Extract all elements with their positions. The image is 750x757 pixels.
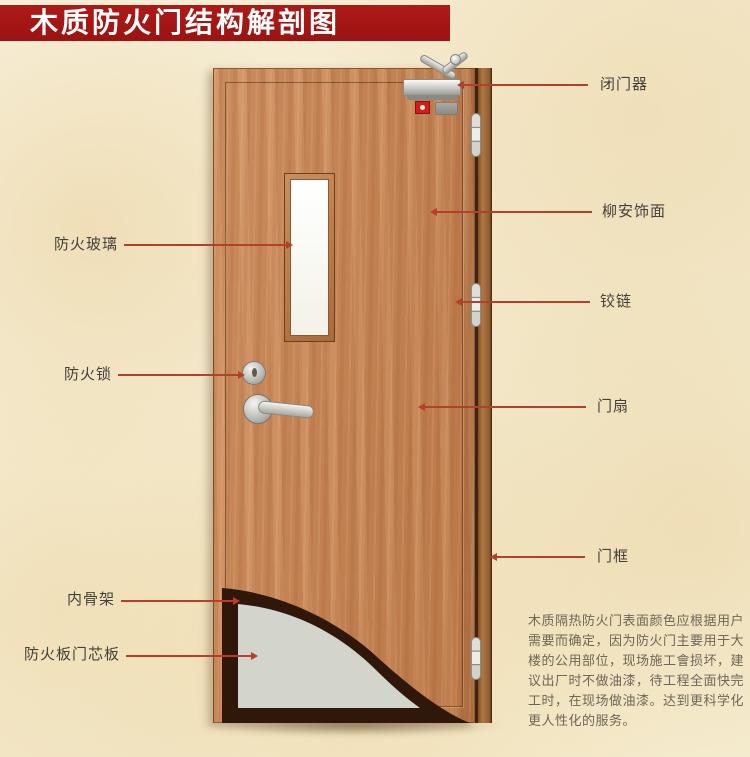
arrowhead-fire-glass — [286, 241, 293, 249]
label-inner-skeleton: 内骨架 — [30, 592, 115, 608]
arrowhead-fire-lock — [238, 371, 245, 379]
label-fire-glass: 防火玻璃 — [30, 237, 118, 253]
alarm-indicator — [415, 101, 430, 114]
door-frame — [478, 68, 492, 723]
arrow-line-core-panel — [126, 655, 251, 657]
arrow-line-inner-skeleton — [121, 600, 233, 602]
arrow-line-door-closer — [464, 84, 588, 86]
lock-cylinder — [242, 361, 266, 385]
arrow-line-hinge — [462, 301, 590, 303]
door-leaf — [213, 68, 475, 723]
closer-pivot — [450, 54, 461, 65]
cutaway-section — [214, 574, 476, 724]
hinge-middle — [471, 283, 481, 327]
page-title: 木质防火门结构解剖图 — [30, 7, 340, 38]
fire-glass-window — [284, 173, 335, 342]
arrowhead-inner-skeleton — [233, 597, 240, 605]
hinge-top — [471, 113, 481, 157]
junction-box — [435, 102, 458, 115]
label-door-frame: 门框 — [597, 549, 629, 565]
door-assembly — [213, 68, 492, 723]
arrow-line-door-leaf — [425, 406, 586, 408]
label-door-closer: 闭门器 — [600, 77, 648, 93]
arrowhead-door-closer — [457, 81, 464, 89]
core-panel — [238, 604, 420, 708]
label-core-panel: 防火板门芯板 — [20, 647, 120, 663]
description-text: 木质隔热防火门表面颜色应根据用户需要而确定，因为防火门主要用于大楼的公用部位，现… — [528, 611, 744, 731]
arrowhead-veneer — [430, 208, 437, 216]
door-closer — [403, 79, 461, 96]
arrow-line-fire-lock — [118, 374, 238, 376]
window-glass — [290, 179, 329, 336]
arrow-line-door-frame — [497, 556, 585, 558]
label-hinge: 铰链 — [600, 294, 632, 310]
arrowhead-door-leaf — [418, 403, 425, 411]
arrow-line-fire-glass — [124, 244, 286, 246]
diagram-canvas: 木质防火门结构解剖图 — [0, 0, 750, 757]
label-fire-lock: 防火锁 — [30, 367, 112, 383]
arrowhead-door-frame — [490, 553, 497, 561]
label-door-leaf: 门扇 — [597, 399, 629, 415]
arrowhead-core-panel — [251, 652, 258, 660]
closer-mount-plate — [407, 96, 457, 100]
hinge-bottom — [471, 637, 481, 680]
title-banner: 木质防火门结构解剖图 — [0, 5, 450, 41]
label-veneer: 柳安饰面 — [602, 204, 666, 220]
arrow-line-veneer — [437, 211, 592, 213]
arrowhead-hinge — [455, 298, 462, 306]
